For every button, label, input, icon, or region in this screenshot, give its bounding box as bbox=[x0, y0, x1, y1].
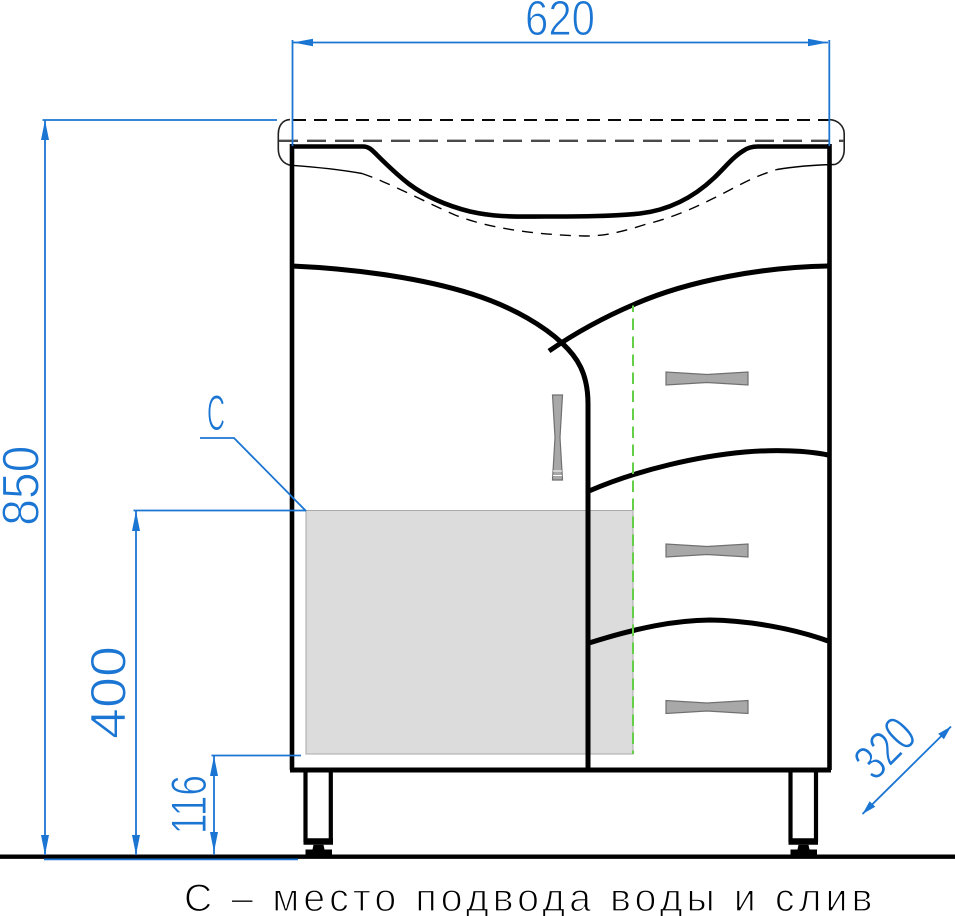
svg-text:850: 850 bbox=[0, 446, 51, 526]
svg-text:С: С bbox=[207, 385, 225, 441]
svg-text:С – место подвода воды и слив: С – место подвода воды и слив bbox=[184, 877, 877, 916]
svg-text:400: 400 bbox=[81, 646, 137, 739]
svg-text:116: 116 bbox=[161, 775, 217, 834]
svg-text:620: 620 bbox=[525, 0, 595, 46]
